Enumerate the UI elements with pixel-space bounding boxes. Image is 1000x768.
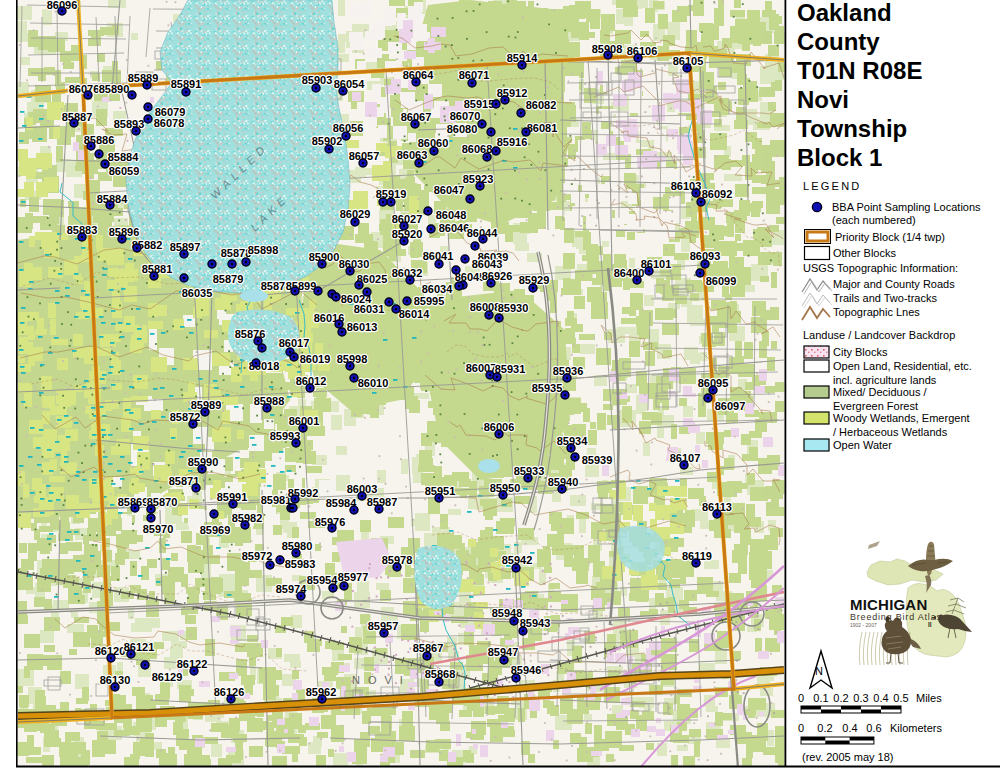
svg-text:0.5: 0.5	[893, 692, 908, 704]
svg-text:86092: 86092	[702, 188, 733, 200]
svg-text:86078: 86078	[154, 117, 185, 129]
svg-text:Landuse / Landcover Backdrop: Landuse / Landcover Backdrop	[803, 329, 955, 341]
svg-text:City Blocks: City Blocks	[833, 346, 888, 358]
svg-text:86017: 86017	[279, 337, 310, 349]
svg-text:MICHIGAN: MICHIGAN	[850, 596, 927, 613]
svg-text:86034: 86034	[422, 283, 453, 295]
svg-text:Other Blocks: Other Blocks	[833, 247, 896, 259]
svg-text:85879: 85879	[213, 273, 244, 285]
svg-text:Woody Wetlands, Emergent: Woody Wetlands, Emergent	[833, 412, 970, 424]
svg-text:USGS Topographic Information:: USGS Topographic Information:	[803, 262, 958, 274]
svg-text:86048: 86048	[436, 209, 467, 221]
svg-text:Evergreen Forest: Evergreen Forest	[833, 400, 918, 412]
svg-text:86082: 86082	[526, 99, 557, 111]
svg-text:85884: 85884	[108, 151, 139, 163]
svg-text:Mixed/ Deciduous /: Mixed/ Deciduous /	[833, 386, 927, 398]
svg-text:86019: 86019	[300, 353, 331, 365]
svg-text:Block 1: Block 1	[797, 144, 882, 171]
svg-text:85935: 85935	[532, 382, 563, 394]
svg-text:86010: 86010	[358, 377, 389, 389]
svg-text:86059: 86059	[109, 165, 140, 177]
svg-text:(each numbered): (each numbered)	[832, 214, 916, 226]
svg-text:Trails and Two-tracks: Trails and Two-tracks	[833, 292, 937, 304]
svg-text:0: 0	[798, 722, 804, 734]
svg-text:86047: 86047	[434, 184, 465, 196]
svg-text:0.3: 0.3	[853, 692, 868, 704]
svg-text:86081: 86081	[527, 122, 558, 134]
svg-text:86043: 86043	[472, 258, 503, 270]
svg-text:86080: 86080	[447, 123, 478, 135]
svg-text:86070: 86070	[450, 110, 481, 122]
svg-text:86013: 86013	[347, 321, 378, 333]
svg-text:85969: 85969	[200, 524, 231, 536]
svg-text:County: County	[797, 28, 880, 55]
svg-text:86046: 86046	[439, 222, 470, 234]
svg-text:85916: 85916	[497, 136, 528, 148]
svg-text:0.4: 0.4	[873, 692, 888, 704]
svg-text:Kilometers: Kilometers	[890, 722, 942, 734]
svg-text:85899: 85899	[286, 280, 317, 292]
svg-text:II: II	[928, 621, 932, 628]
svg-text:85983: 85983	[285, 558, 316, 570]
svg-text:85930: 85930	[498, 302, 529, 314]
svg-text:0.6: 0.6	[866, 722, 881, 734]
svg-text:86063: 86063	[397, 149, 428, 161]
svg-text:0.1: 0.1	[813, 692, 828, 704]
svg-text:85878: 85878	[221, 247, 252, 259]
svg-text:85939: 85939	[582, 454, 613, 466]
svg-text:N: N	[815, 665, 823, 677]
svg-text:Priority Block (1/4 twp): Priority Block (1/4 twp)	[835, 231, 945, 243]
svg-text:(rev. 2005 may 18): (rev. 2005 may 18)	[802, 751, 894, 763]
svg-text:86035: 86035	[182, 287, 213, 299]
svg-text:86129: 86129	[152, 671, 183, 683]
svg-text:Major and County Roads: Major and County Roads	[833, 278, 955, 290]
svg-text:86031: 86031	[354, 303, 385, 315]
svg-text:85948: 85948	[492, 607, 523, 619]
svg-text:BBA Point Sampling Locations: BBA Point Sampling Locations	[832, 201, 981, 213]
svg-text:85898: 85898	[248, 244, 279, 256]
svg-text:86097: 86097	[715, 400, 746, 412]
svg-text:85915: 85915	[464, 98, 495, 110]
svg-text:85890: 85890	[99, 83, 130, 95]
svg-text:85972: 85972	[242, 550, 273, 562]
svg-text:1902 - 2007: 1902 - 2007	[850, 622, 877, 628]
svg-text:85970: 85970	[143, 523, 174, 535]
svg-text:86926: 86926	[482, 270, 513, 282]
svg-text:86106: 86106	[627, 45, 658, 57]
svg-text:Topographic Lnes: Topographic Lnes	[833, 306, 920, 318]
svg-text:85995: 85995	[414, 295, 445, 307]
svg-text:Oakland: Oakland	[797, 0, 892, 26]
svg-text:0.4: 0.4	[842, 722, 857, 734]
svg-text:85977: 85977	[338, 571, 369, 583]
svg-text:86054: 86054	[334, 78, 365, 90]
svg-text:85889: 85889	[128, 72, 159, 84]
svg-text:86014: 86014	[399, 308, 430, 320]
svg-text:Open Water: Open Water	[833, 439, 892, 451]
svg-text:NOVI: NOVI	[352, 674, 411, 686]
svg-text:T01N R08E: T01N R08E	[797, 57, 922, 84]
svg-text:Miles: Miles	[916, 692, 942, 704]
svg-text:85981: 85981	[261, 494, 292, 506]
svg-text:86030: 86030	[339, 258, 370, 270]
svg-text:LEGEND: LEGEND	[803, 180, 861, 192]
svg-text:incl. agriculture lands: incl. agriculture lands	[833, 374, 937, 386]
svg-text:0.2: 0.2	[833, 692, 848, 704]
svg-text:Novi: Novi	[797, 86, 849, 113]
svg-text:0.2: 0.2	[817, 722, 832, 734]
svg-text:86008: 86008	[470, 301, 501, 313]
svg-text:0: 0	[798, 692, 804, 704]
svg-text:Open Land, Residential, etc.: Open Land, Residential, etc.	[833, 360, 972, 372]
svg-text:/ Herbaceous Wetlands: / Herbaceous Wetlands	[833, 426, 948, 438]
svg-text:Township: Township	[797, 115, 907, 142]
svg-text:86099: 86099	[706, 275, 737, 287]
